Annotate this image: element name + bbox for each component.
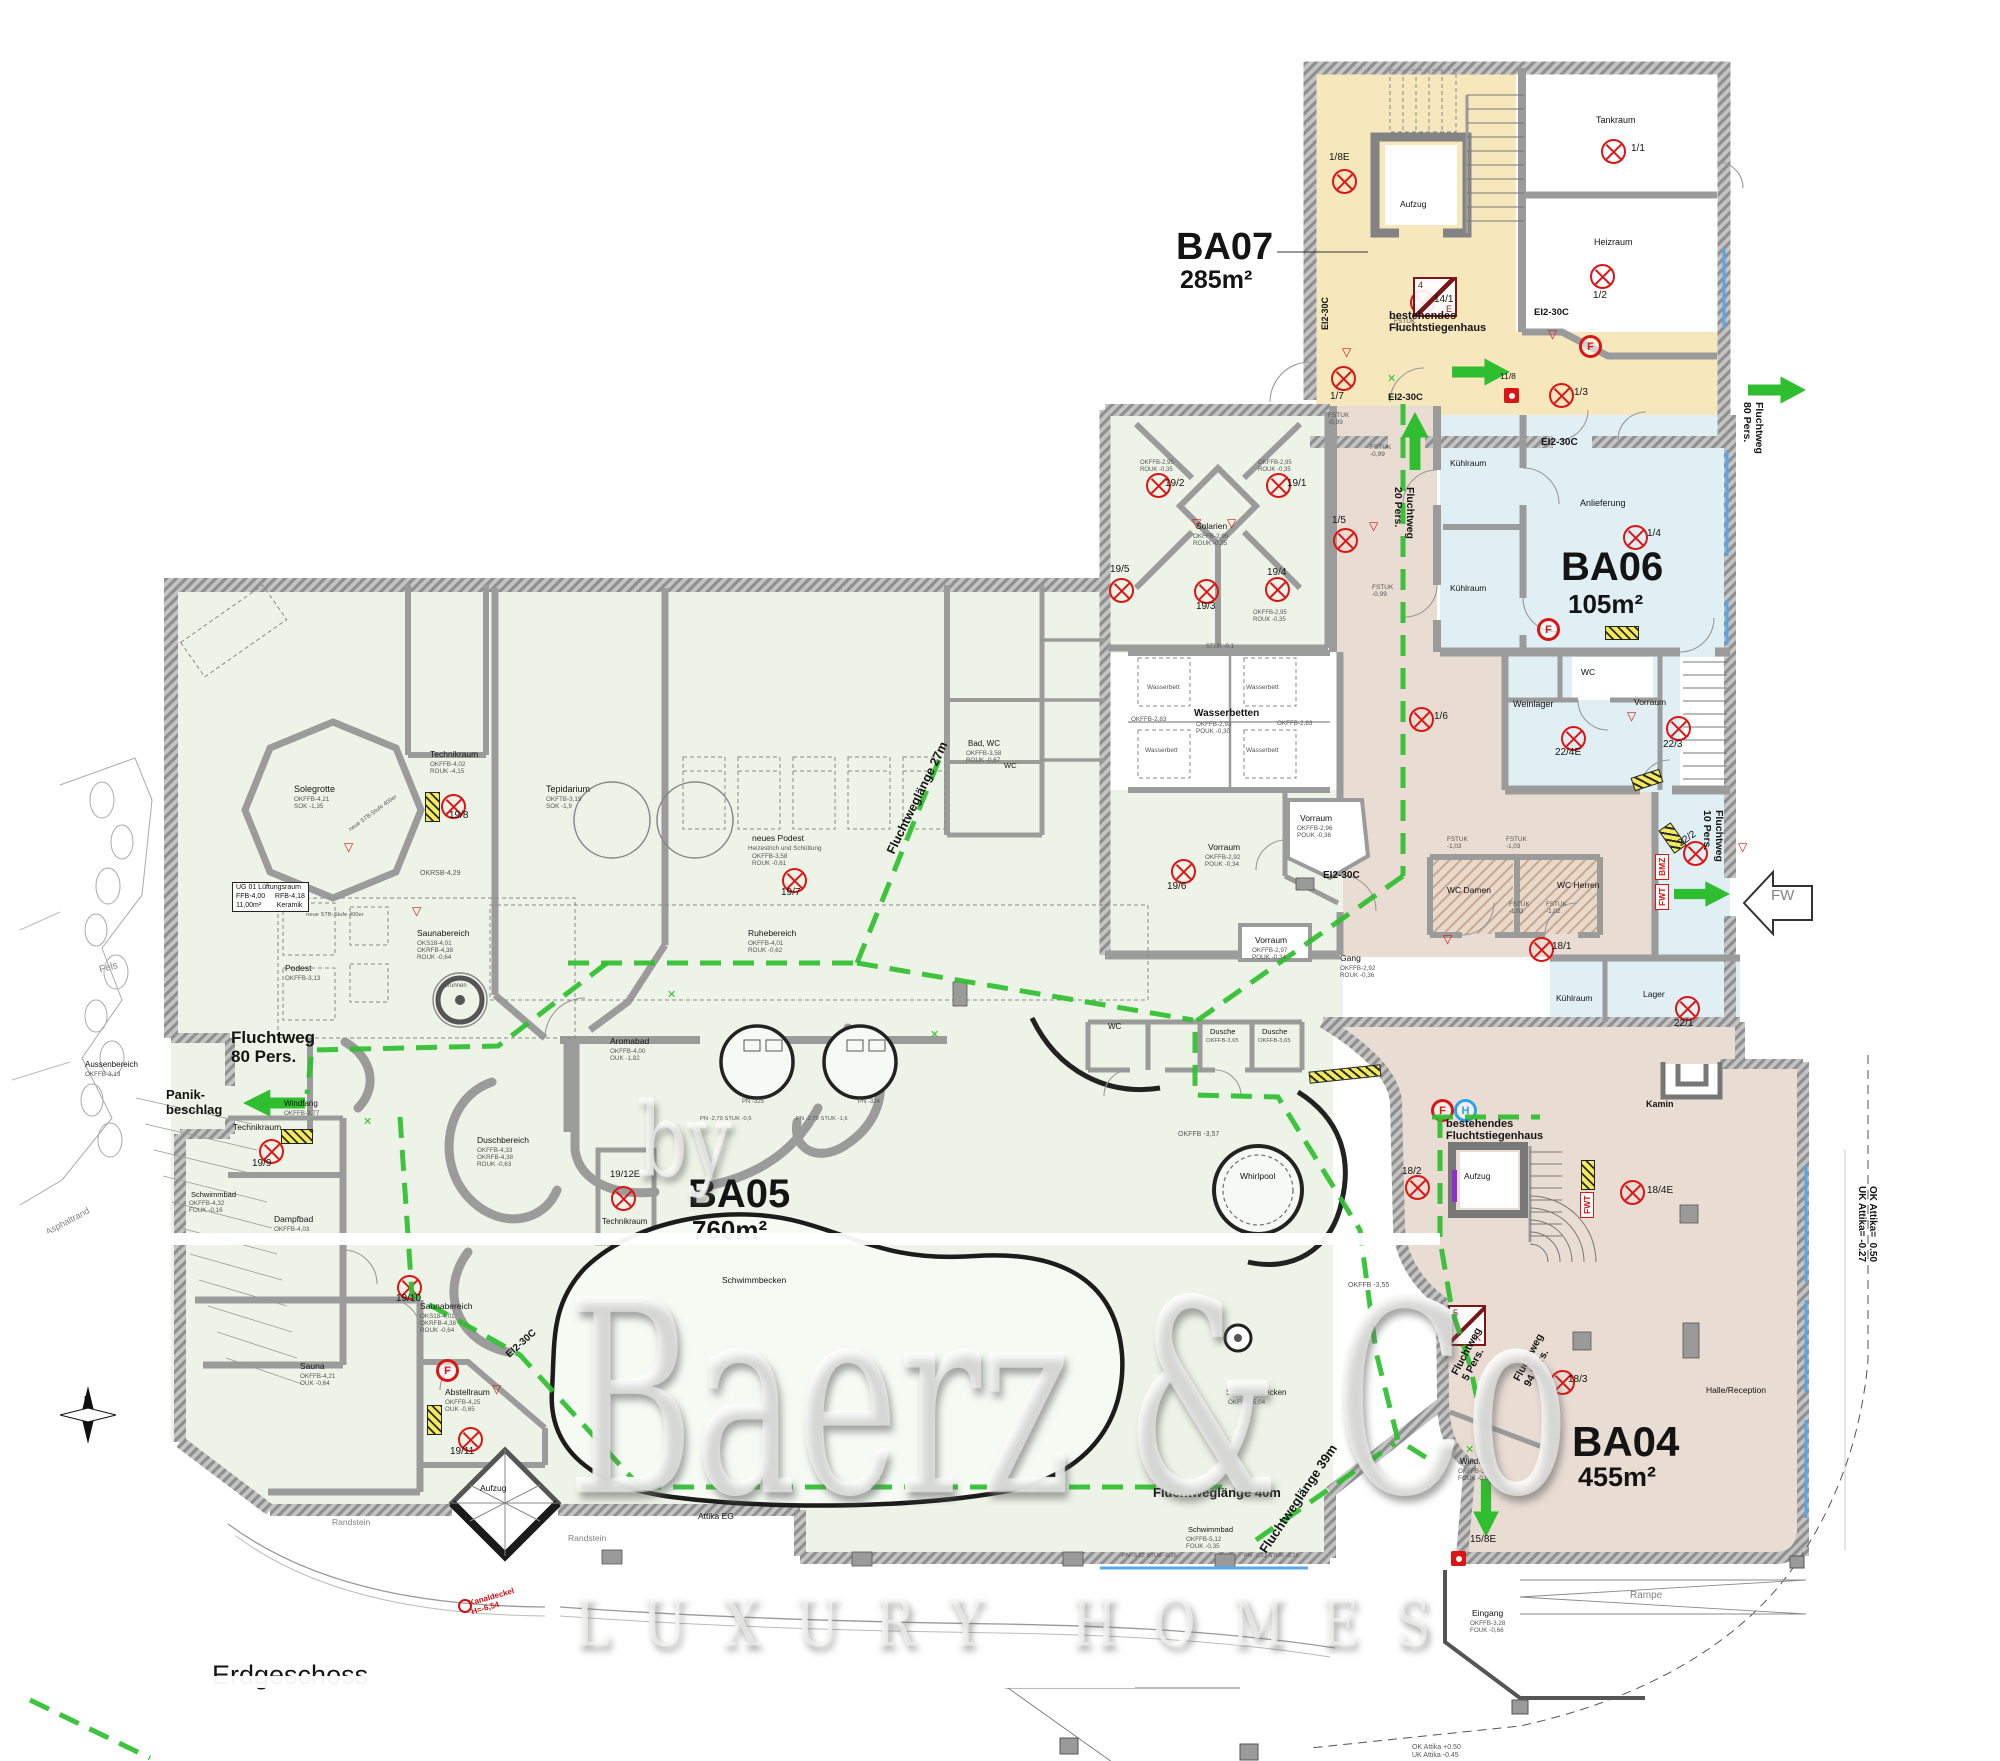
plan-label: 19/9 — [252, 1158, 271, 1169]
plan-label: Wasserbett — [1246, 747, 1279, 754]
plan-label: 19/3 — [1196, 601, 1215, 612]
plan-label: 14/1 — [1434, 294, 1453, 305]
plan-label: EI2-30C — [1323, 870, 1360, 881]
plan-label: Sauna — [300, 1362, 325, 1372]
plan-label: 19/6 — [1167, 881, 1186, 892]
plan-label: Wasserbett — [1147, 684, 1180, 691]
plan-label: Tepidarium — [546, 784, 590, 794]
plan-label: 1/6 — [1434, 711, 1448, 722]
plan-label: OKFFB-2,95 ROUK -0,35 — [1140, 460, 1174, 473]
plan-label: OKFFB-2,95 ROUK -0,35 — [1253, 610, 1287, 623]
plan-label: 11/8 — [1500, 372, 1516, 382]
plan-label: OKFFB-4,02 ROUK -4,15 — [430, 761, 465, 775]
plan-label: Vorraum — [1300, 814, 1332, 824]
plan-label: OKFFB-2,95 ROUK -0,35 — [1193, 533, 1228, 547]
red-equipment-label: FWT — [1655, 884, 1669, 910]
crossed-circle-marker — [1332, 169, 1357, 194]
plan-label: PN -324 — [858, 1099, 880, 1106]
f-marker-icon: F — [1537, 618, 1560, 641]
plan-label: EI2-30C — [1541, 437, 1578, 448]
plan-label: OKFFB-4,33 OKRFB-4,38 ROUK -0,63 — [477, 1147, 513, 1168]
plan-label: OKFFB-4,00 OUK -1,82 — [610, 1048, 645, 1062]
plan-label: FSTUK -0,99 — [1328, 412, 1349, 427]
plan-label: Kühlraum — [1450, 459, 1486, 469]
plan-label: 22/3 — [1663, 739, 1682, 750]
crossed-circle-marker — [1529, 937, 1554, 962]
plan-label: OKFFB-3,28 FOUK -0,66 — [1470, 1620, 1505, 1634]
plan-label: OK Attika +0.50 UK Attika -0.45 — [1412, 1744, 1461, 1760]
plan-label: Technikraum — [430, 750, 478, 760]
plan-label: Whirlpool — [1240, 1172, 1275, 1182]
plan-label: PN -2,79 STUK -1,6 — [796, 1116, 848, 1122]
plan-label: 18/4E — [1647, 1185, 1673, 1196]
plan-label: OKFFB-4,21 OUK -0,64 — [300, 1373, 335, 1387]
door-triangle-marker: ▽ — [344, 841, 353, 853]
plan-label: Aufzug — [1400, 200, 1426, 210]
vent-symbol — [1581, 1160, 1595, 1190]
plan-label: Wasserbett — [1246, 684, 1279, 691]
plan-label: Saunabereich — [420, 1302, 472, 1312]
plan-label: PN -325 — [742, 1099, 764, 1106]
plan-label: OKFFB-4,32 FOUK -0,16 — [189, 1200, 224, 1214]
plan-label: bestehendes Fluchtstiegenhaus — [1446, 1118, 1543, 1143]
ba06-area: 105m² — [1568, 590, 1643, 619]
plan-label: Dampfbad — [274, 1215, 313, 1225]
plan-label: EI2-30C — [1534, 308, 1569, 319]
plan-label: OKFFB-3,65 — [1258, 1038, 1291, 1044]
elevator-door-marker — [1452, 1170, 1457, 1202]
plan-label: OKFFB-2,92 ROUK -0,36 — [1340, 965, 1375, 979]
plan-label: Tankraum — [1596, 115, 1636, 125]
plan-label: Solegrotte — [294, 784, 335, 794]
compass-icon: N — [60, 1386, 116, 1444]
white-band — [25, 1233, 1440, 1245]
plan-label: Randstein — [332, 1518, 370, 1528]
crossed-circle-marker — [1620, 1180, 1645, 1205]
plan-label: OKFFB-3,65 — [1206, 1038, 1239, 1044]
plan-label: Fluchtweg 20 Pers. — [1392, 487, 1416, 539]
door-marker-icon: ✕ — [930, 1030, 939, 1041]
door-triangle-marker: ▽ — [492, 1383, 501, 1395]
plan-label: Gang — [1340, 954, 1361, 964]
plan-label: OKFFB-4,21 SOK -1,35 — [294, 796, 329, 810]
plan-label: neue STB-Stufe 400er — [306, 912, 364, 918]
watermark-tagline: LUXURY HOMES — [575, 1588, 1467, 1661]
plan-label: 19/7 — [781, 887, 800, 898]
plan-label: 19/5 — [1110, 564, 1129, 575]
plan-label: Technikraum — [602, 1218, 647, 1227]
plan-label: WC — [1004, 762, 1017, 770]
plan-label: OK Attika= 0.50 UK Attika= -0.27 — [1856, 1186, 1878, 1262]
plan-label: OKFFB-2,93 POUK -0,30 — [1196, 721, 1231, 735]
plan-label: neues Podest — [752, 834, 804, 844]
plan-label: 1/5 — [1332, 515, 1346, 526]
plan-label: Kühlraum — [1450, 584, 1486, 594]
ba04-label: BA04 — [1572, 1418, 1679, 1465]
crossed-circle-marker — [1333, 528, 1358, 553]
plan-label: Solarien — [1196, 522, 1227, 532]
plan-label: UG 01 Lüftungsraum FFB-4,00 RFB-4,18 11,… — [232, 882, 309, 912]
plan-label: Panik- beschlag — [166, 1088, 222, 1117]
plan-label: 19/10 — [396, 1293, 421, 1304]
plan-label: FSTUK -0,99 — [1370, 444, 1391, 459]
plan-label: 22/1 — [1674, 1018, 1693, 1029]
plan-label: Lager — [1643, 990, 1665, 1000]
f-marker-icon: F — [1579, 335, 1602, 358]
plan-label: WC — [1581, 668, 1595, 678]
plan-label: EI2-30C — [1388, 393, 1423, 404]
plan-label: OKFFB-3,13 — [285, 975, 320, 982]
door-triangle-marker: ▽ — [1369, 520, 1378, 532]
plan-label: FSTUK -0,99 — [1372, 584, 1393, 599]
plan-label: Aufzug — [480, 1484, 506, 1494]
svg-text:N: N — [84, 1395, 90, 1404]
plan-label: Dusche — [1262, 1028, 1287, 1036]
plan-label: Abstellraum — [445, 1388, 490, 1398]
plan-label: OKFFB-2,97 POUK -0,34 — [1252, 947, 1287, 961]
plan-label: Aromabad — [610, 1037, 649, 1047]
plan-label: Eingang — [1472, 1609, 1503, 1619]
plan-label: 18/2 — [1402, 1166, 1421, 1177]
plan-label: Aussenbereich — [85, 1061, 138, 1070]
plan-label: OKFFB-4,25 OUK -0,65 — [445, 1399, 480, 1413]
crossed-circle-marker — [1549, 383, 1574, 408]
plan-label: 19/11 — [450, 1446, 474, 1457]
plan-label: FSTUK -1,03 — [1447, 836, 1468, 850]
plan-label: OKFFB-4,01 ROUK -0,62 — [748, 940, 783, 954]
plan-label: FSTUK +2,08 — [1394, 318, 1415, 333]
plan-label: FSTUK -1,03 — [1506, 836, 1527, 850]
f-marker-icon: F — [436, 1359, 459, 1382]
vent-symbol — [1605, 626, 1639, 640]
ba07-label: BA07 — [1176, 226, 1273, 269]
vent-symbol — [425, 792, 440, 822]
plan-label: FSTUK -1,02 — [1546, 901, 1567, 915]
plan-label: OKRSB-4,29 — [420, 870, 460, 878]
plan-label: 1/2 — [1593, 290, 1607, 301]
door-triangle-marker: ▽ — [1443, 933, 1452, 945]
plan-label: Bad, WC — [968, 740, 1000, 749]
plan-label: 1/1 — [1631, 143, 1645, 154]
plan-label: Fluchtweg 80 Pers. — [231, 1028, 315, 1066]
door-marker-icon: ✕ — [363, 1117, 372, 1128]
plan-label: Vorraum — [1634, 698, 1666, 708]
plan-label: Schwimmbad — [191, 1191, 236, 1199]
plan-label: Heizraum — [1594, 237, 1633, 247]
plan-label: FSTUK -1,03 — [1509, 901, 1530, 915]
plan-label: OKFFB-2,83 — [1131, 716, 1166, 723]
crossed-circle-marker — [1666, 716, 1691, 741]
plan-label: 19/12E — [610, 1170, 640, 1181]
crossed-circle-marker — [1590, 264, 1615, 289]
plan-label: OKFFB-2,83 — [1277, 720, 1312, 727]
plan-label: 18/3 — [1568, 1374, 1587, 1385]
crossed-circle-marker — [1265, 577, 1290, 602]
door-triangle-marker: ▽ — [1227, 517, 1236, 529]
vent-symbol — [281, 1129, 313, 1144]
fire-alarm-icon — [1504, 388, 1519, 403]
door-triangle-marker: ▽ — [1738, 841, 1747, 853]
plan-label: Saunabereich — [417, 929, 469, 939]
plan-label: EI2-30C — [1320, 297, 1330, 330]
plan-label: OKFFB-3,77 — [284, 1110, 319, 1117]
plan-label: 1/3 — [1574, 387, 1588, 398]
crossed-circle-marker — [1601, 139, 1626, 164]
white-band — [25, 1676, 1135, 1688]
crossed-circle-marker — [1109, 578, 1134, 603]
plan-label: Podest — [285, 964, 311, 974]
plan-label: Wasserbett — [1145, 747, 1178, 754]
plan-label: 1/8E — [1329, 152, 1350, 163]
plan-label: Vorraum — [1208, 843, 1240, 853]
crossed-circle-marker — [1331, 366, 1356, 391]
vent-symbol — [427, 1405, 442, 1435]
crossed-circle-marker — [1409, 707, 1434, 732]
plan-label: 19/4 — [1267, 567, 1286, 578]
plan-label: 22/4E — [1555, 747, 1581, 758]
plan-label: WC — [1108, 1023, 1121, 1032]
plan-label: OKFFB-2,92 POUK -0,34 — [1205, 854, 1240, 868]
plan-label: WC Herren — [1557, 881, 1600, 891]
plan-label: Ruhebereich — [748, 929, 796, 939]
plan-label: Duschbereich — [477, 1136, 529, 1146]
plan-label: OKS18-4,01 OKRFB-4,38 ROUK -0,64 — [420, 1313, 456, 1334]
plan-label: Fluchtweg 10 Pers. — [1701, 810, 1725, 862]
plan-label: OKFFB-3,13 — [85, 1071, 120, 1078]
plan-label: OKFFB-2,95 ROUK -0,35 — [1258, 460, 1292, 473]
plan-label: OKFFB-3,58 ROUK -0,67 — [966, 750, 1001, 764]
plan-label: OKFTB-3,19 SOK -1,9 — [546, 796, 581, 810]
plan-label: Anlieferung — [1580, 498, 1626, 508]
red-equipment-label: FWT — [1580, 1192, 1594, 1218]
door-triangle-marker: ▽ — [1342, 346, 1351, 358]
plan-label: Fluchtweg 80 Pers. — [1741, 402, 1765, 454]
door-triangle-marker: ▽ — [1627, 710, 1636, 722]
plan-label: OKFFB -3,57 — [1178, 1131, 1219, 1139]
plan-label: Dusche — [1210, 1028, 1235, 1036]
door-marker-icon: ✕ — [1387, 374, 1396, 385]
plan-label: STUK -0,1 — [1206, 644, 1234, 651]
plan-label: Heizestrich und Schüttung — [748, 845, 822, 852]
crossed-circle-marker — [611, 1186, 636, 1211]
watermark-brand: Baerz & Co — [568, 1252, 1569, 1551]
plan-label: 1/7 — [1330, 391, 1344, 402]
door-marker-icon: ✕ — [667, 990, 676, 1001]
door-triangle-marker: ▽ — [1548, 328, 1557, 340]
plan-label: Windfang — [284, 1100, 318, 1109]
plan-label: OKFFB-2,96 POUK -0,36 — [1297, 825, 1332, 839]
plan-label: Kühlraum — [1556, 994, 1592, 1004]
plan-label: Brunnen — [444, 983, 467, 990]
plan-label: Halle/Reception — [1706, 1386, 1766, 1396]
ba06-label: BA06 — [1561, 545, 1663, 590]
plan-label: OKFFB-3,58 ROUK -0,61 — [752, 853, 787, 867]
plan-label: 19/2 — [1165, 478, 1184, 489]
plan-label: OKS18-4,01 OKRFB-4,38 ROUK -0,64 — [417, 940, 453, 961]
plan-label: Technikraum — [233, 1123, 281, 1133]
door-triangle-marker: ▽ — [412, 905, 421, 917]
watermark-by: by — [638, 1086, 732, 1200]
plan-label: 18/1 — [1552, 941, 1571, 952]
plan-label: Vorraum — [1255, 936, 1287, 946]
plan-label: Kamin — [1646, 1099, 1674, 1109]
ba07-area: 285m² — [1180, 266, 1252, 294]
plan-label: Wasserbetten — [1194, 708, 1259, 719]
red-equipment-label: BMZ — [1655, 854, 1669, 880]
plan-label: Rampe — [1630, 1590, 1662, 1601]
crossed-circle-marker — [1405, 1175, 1430, 1200]
fw-arrow-label: FW — [1771, 888, 1794, 905]
floorplan-canvas: N BA07285m²Tankraum1/1Heizraum1/21/8EAuf… — [0, 0, 2000, 1761]
plan-label: Aufzug — [1464, 1172, 1490, 1182]
plan-label: Weinlager — [1513, 699, 1553, 709]
plan-label: 19/1 — [1287, 478, 1306, 489]
plan-label: 1/4 — [1647, 528, 1661, 539]
plan-label: 19/8 — [449, 810, 468, 821]
plan-label: WC Damen — [1447, 886, 1491, 896]
ba04-area: 455m² — [1578, 1462, 1656, 1492]
